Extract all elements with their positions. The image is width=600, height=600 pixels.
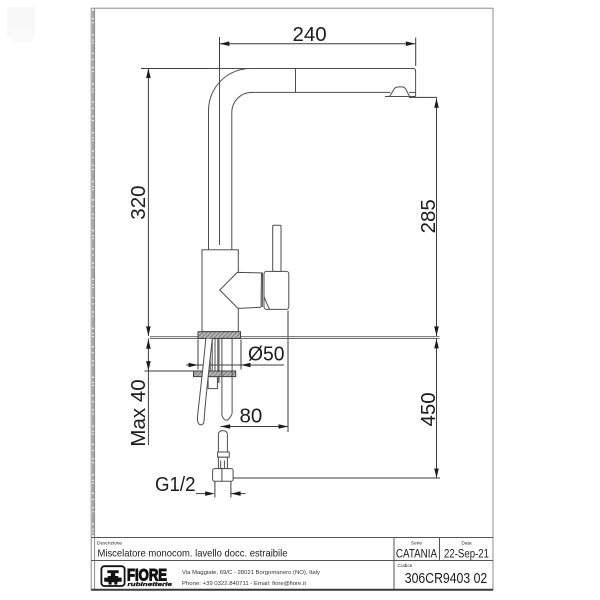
svg-text:Descrizione: Descrizione (97, 541, 122, 547)
svg-text:320: 320 (127, 185, 150, 219)
svg-text:Ø50: Ø50 (248, 343, 285, 366)
svg-text:G1/2: G1/2 (155, 473, 196, 496)
svg-text:Miscelatore monocom. lavello d: Miscelatore monocom. lavello docc. estra… (98, 549, 288, 560)
svg-text:Via Maggiate, 69/C - 28021 Bor: Via Maggiate, 69/C - 28021 Borgomanero (… (182, 570, 320, 576)
svg-text:rubinetterie: rubinetterie (128, 582, 173, 588)
svg-text:22-Sep-21: 22-Sep-21 (444, 547, 489, 561)
svg-text:Codice: Codice (398, 563, 413, 569)
svg-text:306CR9403 02: 306CR9403 02 (405, 570, 488, 587)
svg-text:285: 285 (417, 199, 440, 233)
svg-text:240: 240 (293, 23, 327, 46)
svg-text:80: 80 (240, 405, 263, 428)
svg-text:Phone: +39 0322.840711 - Email: Phone: +39 0322.840711 - Email: fiore@fi… (182, 581, 307, 587)
svg-text:Max 40: Max 40 (127, 379, 150, 446)
svg-text:CATANIA: CATANIA (396, 547, 437, 561)
svg-text:450: 450 (417, 392, 440, 426)
